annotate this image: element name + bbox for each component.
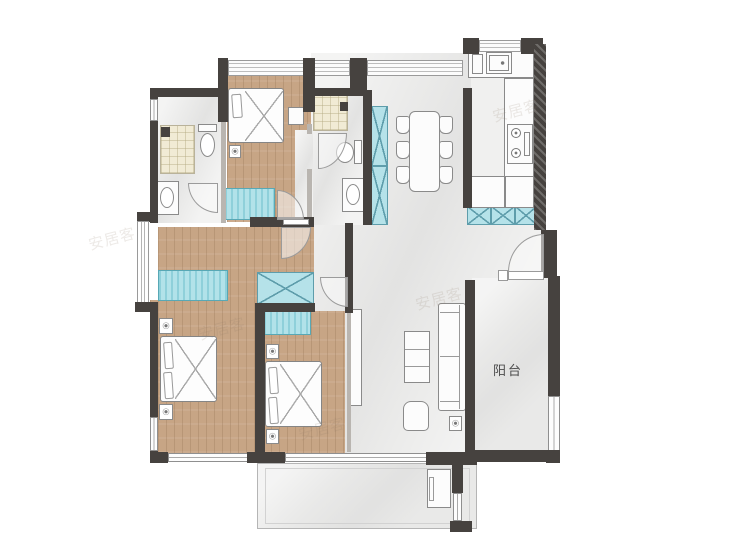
bedroom-2-wardrobe xyxy=(263,311,311,335)
wall xyxy=(303,58,315,112)
washer-door xyxy=(429,477,434,501)
wall xyxy=(465,280,475,454)
balcony-window xyxy=(548,396,560,452)
window-band-dining xyxy=(367,60,463,76)
nightstand-plant-icon xyxy=(266,429,279,444)
toilet-1-bowl xyxy=(200,133,215,157)
bay-window xyxy=(137,221,149,303)
armchair xyxy=(403,401,429,431)
floor-plan: 阳台 安居客 安居客 安居客 安居客 安居客 xyxy=(0,0,750,560)
pillow xyxy=(268,367,279,395)
tv-console xyxy=(350,309,362,406)
dining-chair xyxy=(396,116,410,134)
window xyxy=(150,417,158,451)
wall xyxy=(452,455,463,493)
pillow xyxy=(163,342,174,370)
window-master xyxy=(168,453,248,462)
partition-wall xyxy=(221,122,226,223)
balcony-label: 阳台 xyxy=(493,360,523,379)
door-frame xyxy=(498,270,508,281)
dining-chair xyxy=(439,116,453,134)
dining-table xyxy=(409,111,440,192)
wall xyxy=(255,303,265,453)
shower-head-2-icon xyxy=(340,102,348,111)
entry-door-leaf xyxy=(508,271,544,280)
entry-shoe-cabinet-2 xyxy=(491,206,515,225)
stove-burner-2-icon xyxy=(511,148,521,158)
nightstand-plant-icon xyxy=(159,404,173,420)
bedroom-2-bed xyxy=(265,361,322,427)
nightstand-plant-icon xyxy=(266,344,279,359)
side-table-plant-icon xyxy=(449,416,462,431)
shower-head-1-icon xyxy=(161,127,170,137)
sofa xyxy=(438,303,466,411)
sofa-seat-line xyxy=(440,356,460,357)
wall xyxy=(450,521,472,532)
kitchen-sink-basin xyxy=(489,55,509,71)
wall xyxy=(534,44,546,230)
watermark: 安居客 xyxy=(86,222,138,255)
stove-controls xyxy=(524,132,530,156)
dining-chair xyxy=(396,141,410,159)
bed-blanket-pattern xyxy=(280,364,321,424)
dining-chair xyxy=(396,166,410,184)
wall xyxy=(150,88,228,97)
wall xyxy=(247,452,285,463)
master-bed xyxy=(160,336,217,402)
kitchen-rack xyxy=(472,54,483,74)
toilet-2-tank xyxy=(354,140,362,164)
bedroom-1-side-table xyxy=(288,107,304,125)
bed-blanket-pattern xyxy=(245,91,283,141)
wall xyxy=(548,276,560,398)
window-band-bedroom-1 xyxy=(228,60,350,76)
dressing-wardrobe xyxy=(158,270,228,301)
pillow xyxy=(163,372,174,400)
kitchen-counter-bottom xyxy=(471,176,505,208)
stove-burner-1-icon xyxy=(511,128,521,138)
dining-chair xyxy=(439,141,453,159)
wall xyxy=(350,58,367,90)
hall-cabinet-upper xyxy=(371,106,388,166)
bed-blanket-pattern xyxy=(175,339,216,399)
shower-2 xyxy=(313,95,348,131)
wall xyxy=(313,88,367,96)
window xyxy=(453,493,462,521)
kitchen-fridge xyxy=(505,176,534,208)
vanity-2-basin xyxy=(346,184,360,205)
kitchen-window xyxy=(479,40,521,52)
entry-shoe-cabinet-1 xyxy=(467,206,491,225)
bedroom-1-bed xyxy=(228,88,284,143)
pillow xyxy=(268,397,279,425)
wall xyxy=(150,452,168,463)
partition-wall xyxy=(307,124,312,134)
pillow xyxy=(231,94,243,119)
window xyxy=(150,99,158,121)
window-living xyxy=(285,453,428,462)
dressing-cabinet xyxy=(257,272,314,305)
wall xyxy=(363,90,372,225)
hall-cabinet-lower xyxy=(371,166,388,225)
toilet-1-tank xyxy=(198,124,217,132)
vanity-1-basin xyxy=(160,187,174,208)
nightstand-plant-icon xyxy=(159,318,173,334)
dining-chair xyxy=(439,166,453,184)
bedroom-1-wardrobe xyxy=(224,188,275,220)
wall xyxy=(463,88,472,208)
plant-icon xyxy=(229,145,241,158)
wall xyxy=(465,450,560,462)
wall xyxy=(463,38,479,54)
sofa-armrest xyxy=(440,401,460,402)
washer xyxy=(427,469,451,508)
coffee-table xyxy=(404,331,430,383)
sofa-armrest xyxy=(440,312,460,313)
